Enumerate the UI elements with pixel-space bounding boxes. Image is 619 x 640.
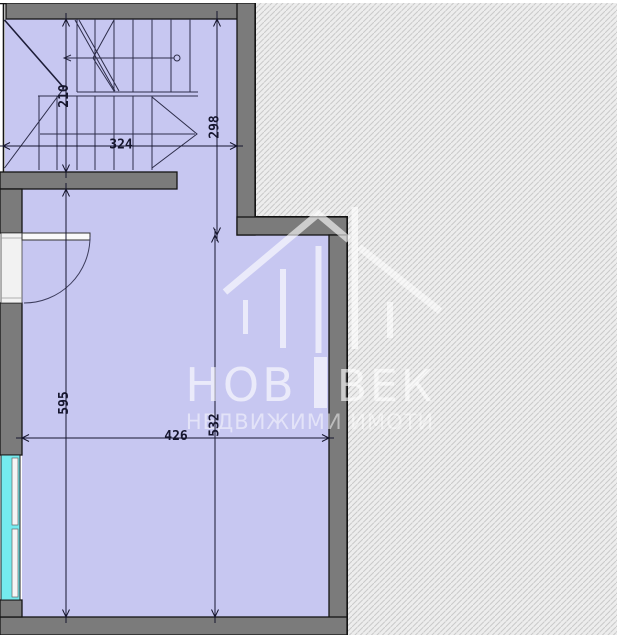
wall-left-middle xyxy=(0,303,22,455)
watermark-tall-bar xyxy=(352,207,359,349)
dim-label-298: 298 xyxy=(208,115,223,139)
watermark-stripe-3 xyxy=(316,246,322,353)
window xyxy=(1,455,20,600)
wall-main-right xyxy=(329,235,347,635)
wall-stairwell-right xyxy=(237,3,255,235)
watermark-tagline: НЕДВИЖИМИ ИМОТИ xyxy=(186,410,434,434)
wall-top xyxy=(6,3,255,19)
window-sash-lower xyxy=(12,529,18,597)
wall-left-lower xyxy=(0,600,22,617)
wall-stairwell-bottom xyxy=(0,172,177,189)
watermark-brand-right: ВЕК xyxy=(337,361,435,412)
wall-bottom xyxy=(0,617,347,635)
frame-top xyxy=(0,0,619,3)
floor-plan-page: НОВ ВЕК НЕДВИЖИМИ ИМОТИ 210 324 298 595 … xyxy=(0,0,619,640)
dim-label-532: 532 xyxy=(208,413,223,436)
frame-bottom xyxy=(0,635,619,640)
dim-label-426: 426 xyxy=(164,429,188,444)
wall-left-upper xyxy=(0,189,22,233)
dim-label-595: 595 xyxy=(57,391,72,414)
floor-plan-drawing: НОВ ВЕК НЕДВИЖИМИ ИМОТИ 210 324 298 595 … xyxy=(0,0,619,640)
dim-label-210: 210 xyxy=(57,84,72,108)
door-opening xyxy=(1,233,22,303)
window-sash-upper xyxy=(12,458,18,525)
door-leaf xyxy=(22,233,90,240)
dim-label-324: 324 xyxy=(109,138,133,153)
watermark-stripe-2 xyxy=(280,269,286,348)
watermark-brand-left: НОВ xyxy=(185,358,296,412)
watermark-stripe-1 xyxy=(243,300,248,334)
watermark-separator-bar xyxy=(314,357,327,408)
watermark-stripe-4 xyxy=(387,302,393,338)
